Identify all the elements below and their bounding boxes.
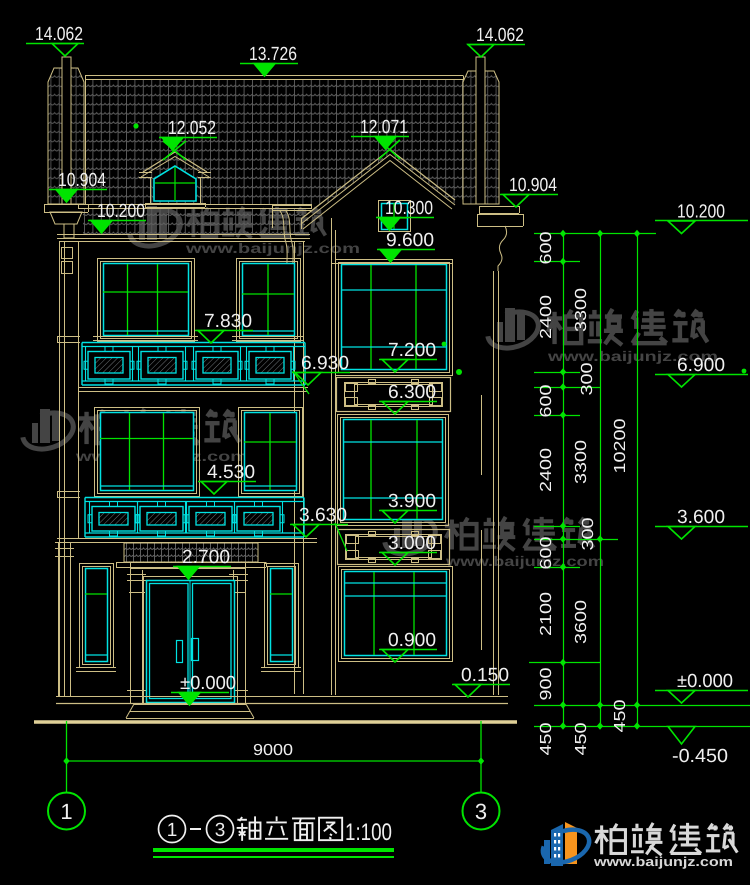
svg-text:12.071: 12.071 bbox=[360, 117, 408, 138]
svg-text:6.930: 6.930 bbox=[301, 353, 349, 374]
svg-text:300: 300 bbox=[580, 517, 597, 550]
svg-text:14.062: 14.062 bbox=[35, 24, 83, 45]
svg-text:3.600: 3.600 bbox=[677, 507, 725, 528]
svg-text:10.904: 10.904 bbox=[509, 175, 557, 196]
svg-text:1: 1 bbox=[60, 799, 72, 824]
svg-text:600: 600 bbox=[538, 231, 555, 264]
svg-text:2100: 2100 bbox=[538, 592, 555, 636]
svg-text:14.062: 14.062 bbox=[476, 25, 524, 46]
svg-text:9000: 9000 bbox=[253, 742, 293, 759]
svg-text:3300: 3300 bbox=[573, 440, 590, 484]
svg-text:7.830: 7.830 bbox=[204, 311, 252, 332]
svg-text:www.baijunjz.com: www.baijunjz.com bbox=[593, 854, 733, 869]
svg-text:10.300: 10.300 bbox=[385, 198, 433, 219]
svg-text:3: 3 bbox=[215, 820, 226, 841]
svg-text:1:100: 1:100 bbox=[345, 819, 392, 846]
svg-text:3300: 3300 bbox=[573, 288, 590, 332]
svg-text:-0.450: -0.450 bbox=[672, 746, 728, 767]
svg-text:0.150: 0.150 bbox=[461, 665, 509, 686]
svg-text:9.600: 9.600 bbox=[386, 230, 434, 251]
svg-text:3.900: 3.900 bbox=[388, 491, 436, 512]
svg-text:0.900: 0.900 bbox=[388, 630, 436, 651]
svg-text:450: 450 bbox=[612, 699, 629, 732]
svg-text:www.baijunjz.com: www.baijunjz.com bbox=[185, 240, 360, 256]
svg-text:7.200: 7.200 bbox=[388, 340, 436, 361]
svg-text:3: 3 bbox=[475, 799, 487, 824]
svg-text:10.904: 10.904 bbox=[58, 170, 106, 191]
svg-text:3.630: 3.630 bbox=[299, 505, 347, 526]
svg-text:900: 900 bbox=[538, 667, 555, 700]
svg-text:600: 600 bbox=[538, 536, 555, 569]
svg-text:10.200: 10.200 bbox=[97, 201, 145, 222]
svg-text:1: 1 bbox=[167, 820, 178, 841]
svg-text:12.052: 12.052 bbox=[168, 118, 216, 139]
svg-text:450: 450 bbox=[573, 722, 590, 755]
svg-text:450: 450 bbox=[538, 722, 555, 755]
svg-text:2.700: 2.700 bbox=[182, 547, 230, 568]
svg-text:300: 300 bbox=[579, 362, 596, 395]
svg-text:6.300: 6.300 bbox=[388, 382, 436, 403]
svg-text:3600: 3600 bbox=[573, 600, 590, 644]
svg-text:www.baijunjz.com: www.baijunjz.com bbox=[445, 553, 604, 569]
svg-text:±0.000: ±0.000 bbox=[677, 671, 733, 692]
svg-text:±0.000: ±0.000 bbox=[180, 673, 236, 694]
svg-text:13.726: 13.726 bbox=[249, 44, 297, 65]
svg-text:6.900: 6.900 bbox=[677, 355, 725, 376]
svg-text:4.530: 4.530 bbox=[207, 462, 255, 483]
svg-text:2400: 2400 bbox=[538, 295, 555, 339]
svg-text:600: 600 bbox=[538, 384, 555, 417]
svg-text:2400: 2400 bbox=[538, 448, 555, 492]
svg-text:3.000: 3.000 bbox=[388, 533, 436, 554]
svg-text:10.200: 10.200 bbox=[677, 202, 725, 223]
svg-text:10200: 10200 bbox=[612, 418, 629, 473]
